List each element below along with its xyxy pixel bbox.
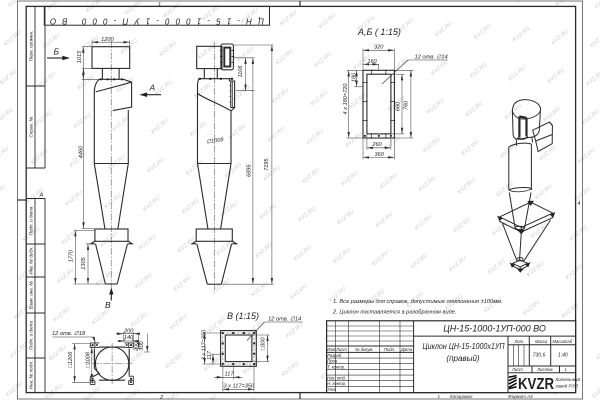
svg-text:Подп. и дата: Подп. и дата bbox=[28, 321, 33, 350]
svg-text:730,6: 730,6 bbox=[533, 353, 546, 359]
svg-text:А: А bbox=[149, 83, 156, 93]
svg-text:12 отв. ∅14: 12 отв. ∅14 bbox=[415, 53, 448, 60]
svg-text:Перв. примен.: Перв. примен. bbox=[28, 31, 33, 62]
svg-text:117: 117 bbox=[207, 350, 213, 360]
svg-text:1305: 1305 bbox=[81, 256, 87, 269]
svg-text:№ докум.: № докум. bbox=[355, 347, 373, 352]
svg-text:1: 1 bbox=[158, 2, 161, 8]
svg-text:Б: Б bbox=[54, 47, 60, 57]
svg-text:360: 360 bbox=[375, 152, 385, 158]
svg-text:1015: 1015 bbox=[77, 50, 83, 63]
svg-text:200: 200 bbox=[123, 328, 134, 334]
svg-text:ЦН-15-1000-1УП-000 ВО: ЦН-15-1000-1УП-000 ВО bbox=[50, 16, 264, 25]
svg-text:□1008: □1008 bbox=[86, 351, 92, 368]
svg-text:□1206: □1206 bbox=[68, 351, 74, 368]
svg-text:3 х 117=350: 3 х 117=350 bbox=[224, 384, 255, 390]
svg-text:Разраб.: Разраб. bbox=[327, 353, 342, 358]
svg-text:260: 260 bbox=[371, 142, 382, 148]
svg-text:Лист: Лист bbox=[511, 367, 523, 372]
svg-text:140: 140 bbox=[124, 335, 134, 341]
svg-text:1106: 1106 bbox=[238, 65, 244, 78]
svg-text:ЦН-15-1000-1УП-000 ВО: ЦН-15-1000-1УП-000 ВО bbox=[443, 323, 546, 333]
svg-text:А,Б ( 1:15): А,Б ( 1:15) bbox=[357, 27, 401, 37]
svg-text:Пров.: Пров. bbox=[327, 358, 338, 363]
svg-text:320: 320 bbox=[374, 45, 384, 51]
svg-text:Циклон ЦН-15-1000х1УП: Циклон ЦН-15-1000х1УП bbox=[423, 342, 505, 351]
svg-text:Лит.: Лит. bbox=[514, 339, 525, 344]
svg-text:160: 160 bbox=[367, 59, 377, 65]
svg-text:12 отв. ∅14: 12 отв. ∅14 bbox=[268, 315, 301, 322]
svg-text:1200: 1200 bbox=[101, 37, 114, 43]
svg-text:6895: 6895 bbox=[246, 164, 252, 177]
svg-text:Т. контр.: Т. контр. bbox=[327, 364, 345, 369]
svg-text:□300: □300 bbox=[260, 337, 266, 351]
svg-text:Котельный: Котельный bbox=[556, 376, 581, 382]
svg-text:4: 4 bbox=[578, 201, 581, 207]
svg-text:660: 660 bbox=[396, 101, 402, 111]
svg-text:4 х 180=720: 4 х 180=720 bbox=[343, 83, 349, 115]
svg-text:12 отв. ∅18: 12 отв. ∅18 bbox=[52, 330, 86, 337]
svg-text:В (1:15): В (1:15) bbox=[227, 311, 259, 321]
svg-text:1770: 1770 bbox=[69, 249, 75, 262]
svg-text:Взам. инв. №: Взам. инв. № bbox=[28, 281, 33, 309]
svg-text:Справ. №: Справ. № bbox=[28, 117, 33, 138]
svg-text:Инв. № дубл.: Инв. № дубл. bbox=[28, 246, 33, 274]
svg-text:В: В bbox=[105, 300, 111, 310]
svg-text:1: 1 bbox=[565, 367, 567, 372]
svg-text:Утв.: Утв. bbox=[327, 387, 337, 392]
svg-text:1. Все размеры для справок, до: 1. Все размеры для справок, допустимые о… bbox=[333, 299, 503, 305]
svg-text:(правый): (правый) bbox=[446, 354, 479, 363]
svg-text:180: 180 bbox=[351, 72, 357, 82]
svg-text:Листов: Листов bbox=[536, 367, 553, 372]
svg-text:Инв. № подл.: Инв. № подл. bbox=[28, 361, 33, 390]
svg-text:2. Циклон поставляется в разоб: 2. Циклон поставляется в разобранном вид… bbox=[332, 310, 457, 316]
svg-text:Масса: Масса bbox=[535, 339, 548, 344]
svg-text:300: 300 bbox=[139, 340, 145, 350]
svg-text:KVZR: KVZR bbox=[518, 376, 554, 393]
svg-text:4460: 4460 bbox=[78, 145, 84, 158]
svg-text:завод РЭП: завод РЭП bbox=[555, 384, 579, 389]
svg-text:117: 117 bbox=[225, 372, 235, 378]
svg-text:Нач. отд.: Нач. отд. bbox=[327, 376, 346, 381]
svg-text:Подп.: Подп. bbox=[384, 347, 395, 352]
svg-text:1:40: 1:40 bbox=[558, 353, 568, 359]
svg-text:Масштаб: Масштаб bbox=[553, 339, 573, 344]
svg-text:Копировал: Копировал bbox=[450, 394, 473, 399]
svg-text:760: 760 bbox=[403, 100, 409, 110]
svg-text:Изм Лист: Изм Лист bbox=[327, 347, 347, 352]
svg-text:Дата: Дата bbox=[400, 347, 413, 352]
svg-text:Н. контр.: Н. контр. bbox=[327, 381, 346, 386]
svg-text:Формат А3: Формат А3 bbox=[508, 394, 533, 399]
svg-text:А: А bbox=[39, 193, 44, 199]
svg-text:Подп. и дата: Подп. и дата bbox=[28, 206, 33, 235]
svg-text:7195: 7195 bbox=[264, 158, 270, 171]
